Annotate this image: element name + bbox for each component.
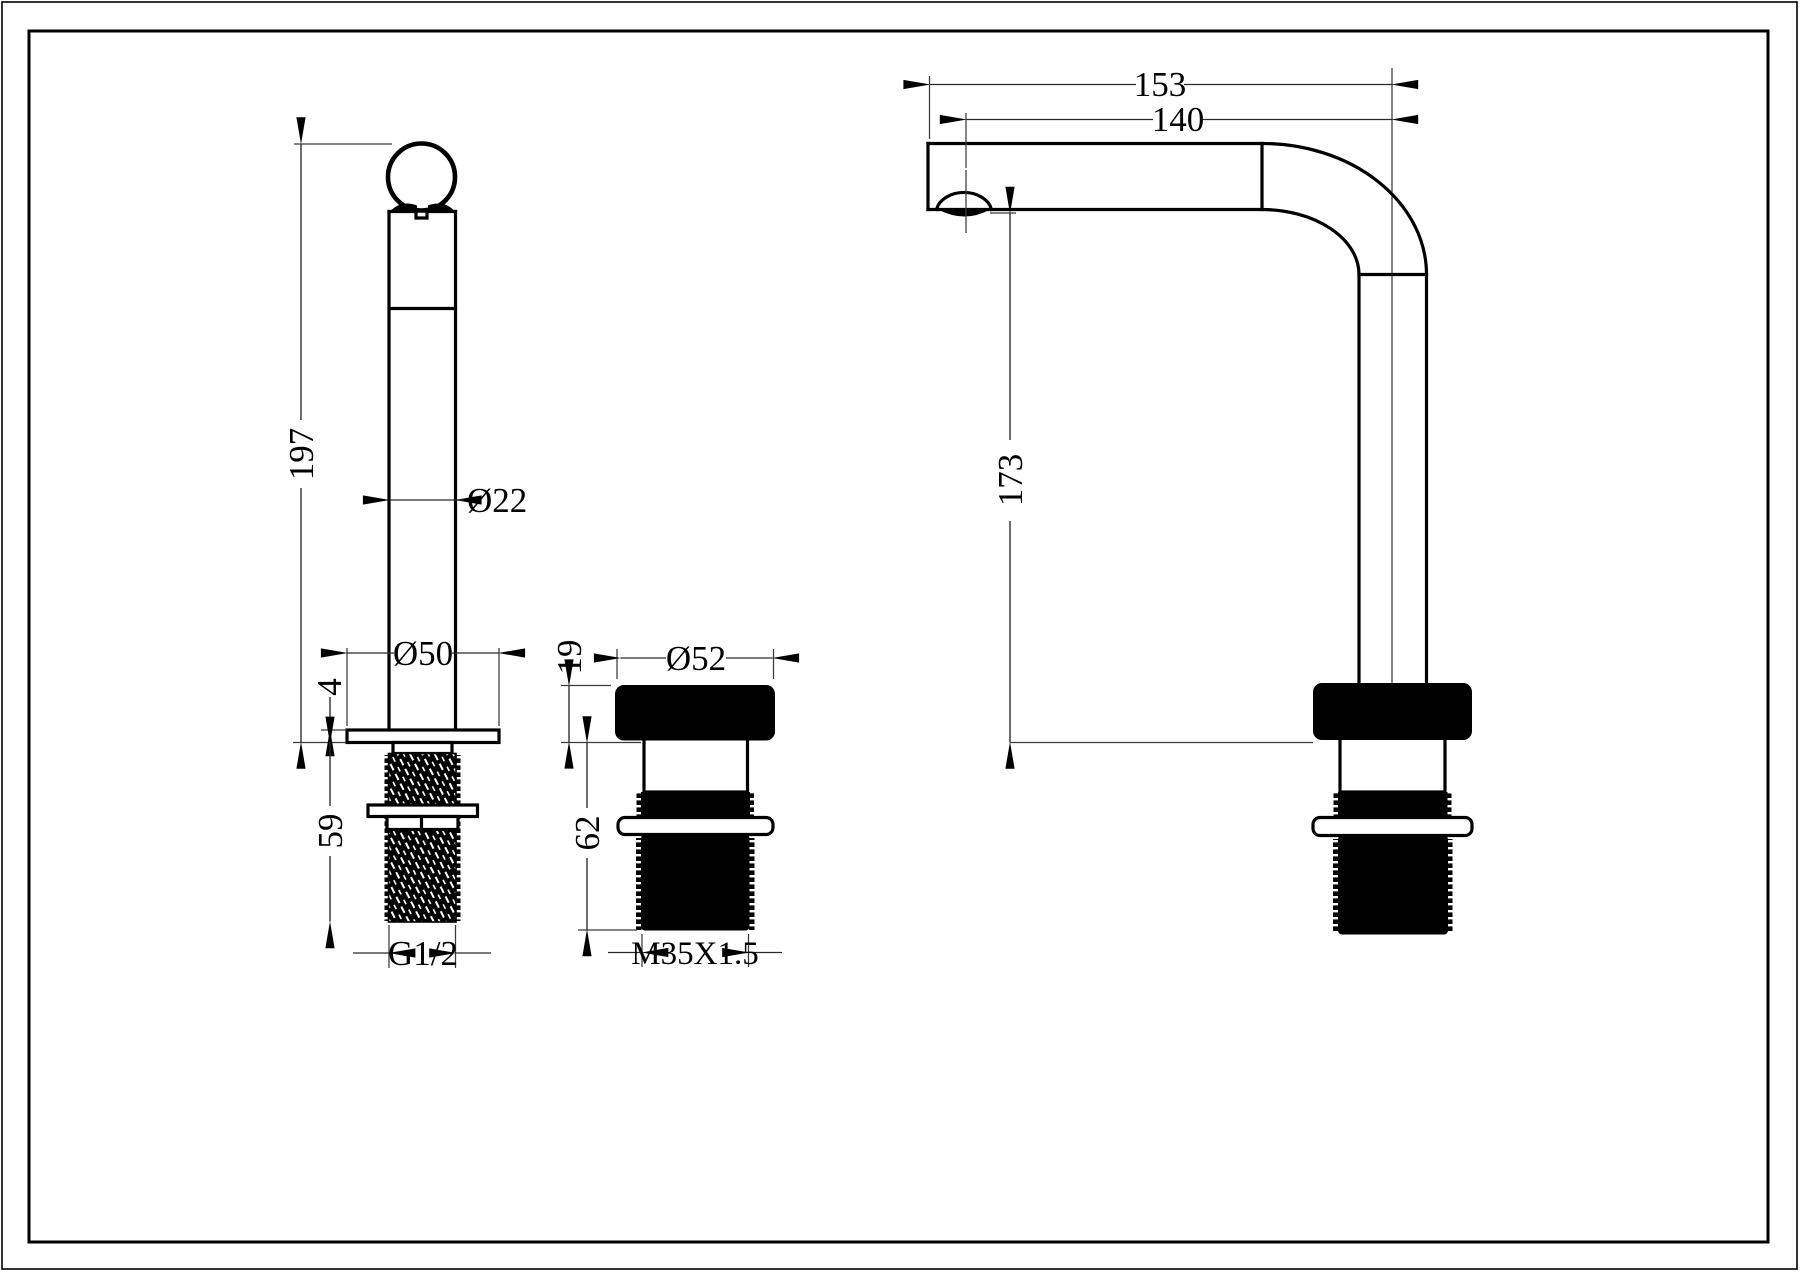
svg-text:G1/2: G1/2 xyxy=(388,934,458,973)
dim-handle-shaft-diameter: Ø22 xyxy=(390,481,528,520)
mounting-base-front-view: Ø52 19 62 M35X1.5 xyxy=(550,639,782,972)
handle-base-plate xyxy=(347,730,499,743)
svg-text:153: 153 xyxy=(1134,65,1187,104)
svg-text:59: 59 xyxy=(311,814,350,849)
spout-base-cap xyxy=(1313,683,1472,740)
spout-base-washer xyxy=(1313,818,1472,836)
svg-text:Ø22: Ø22 xyxy=(467,481,527,520)
dim-spout-reach-to-outlet: 140 xyxy=(966,100,1392,168)
dim-spout-outlet-height: 173 xyxy=(990,213,1313,743)
spout-base-upper-thread xyxy=(1334,792,1452,818)
technical-drawing-page: 197 Ø22 Ø50 4 59 xyxy=(0,0,1800,1273)
dim-handle-base-thickness: 4 xyxy=(310,678,349,730)
handle-washer xyxy=(368,805,478,817)
base-locknut-washer xyxy=(618,818,773,835)
dim-handle-base-diameter: Ø50 xyxy=(347,634,499,726)
sheet-frame xyxy=(2,2,1797,1269)
dim-handle-thread-length: 59 xyxy=(311,743,350,921)
base-upper-thread xyxy=(637,792,755,818)
handle-threaded-shank xyxy=(385,754,461,923)
svg-text:173: 173 xyxy=(991,454,1030,507)
handle-side-view: 197 Ø22 Ø50 4 59 xyxy=(282,144,527,974)
faucet-dimension-drawing: 197 Ø22 Ø50 4 59 xyxy=(0,0,1800,1273)
svg-text:Ø50: Ø50 xyxy=(393,634,453,673)
spout-tube xyxy=(928,143,1427,683)
handle-thread-neck xyxy=(393,743,452,754)
base-neck xyxy=(644,738,748,792)
dim-handle-thread-spec: G1/2 xyxy=(353,925,491,973)
svg-text:62: 62 xyxy=(568,816,607,851)
svg-text:19: 19 xyxy=(550,640,589,675)
base-cap xyxy=(615,685,775,741)
dim-base-body-length: 62 xyxy=(568,743,637,930)
spout-base-neck xyxy=(1340,738,1445,792)
svg-text:M35X1.5: M35X1.5 xyxy=(631,936,758,972)
handle-knob xyxy=(388,144,455,211)
svg-text:Ø52: Ø52 xyxy=(666,639,726,678)
spout-side-view: 153 140 173 xyxy=(928,65,1472,935)
spout-aerator xyxy=(937,170,992,233)
svg-text:140: 140 xyxy=(1152,100,1205,139)
spout-base-lower-thread xyxy=(1333,836,1453,935)
svg-text:4: 4 xyxy=(310,678,349,696)
dim-base-thread-spec: M35X1.5 xyxy=(608,934,782,972)
dim-base-cap-diameter: Ø52 xyxy=(617,639,774,679)
svg-text:197: 197 xyxy=(282,428,321,481)
base-lower-thread xyxy=(636,835,755,931)
